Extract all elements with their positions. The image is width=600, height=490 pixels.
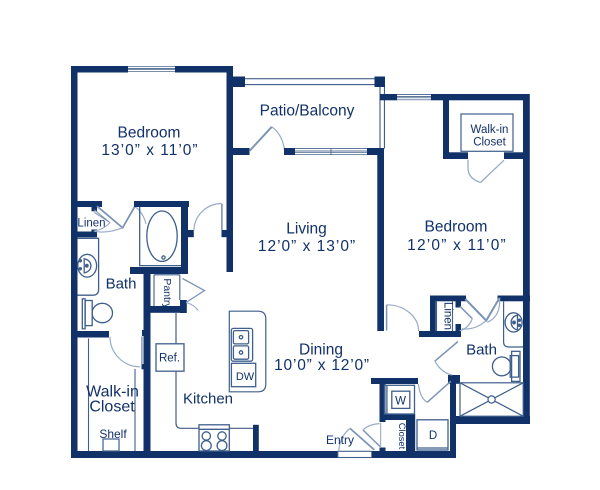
svg-text:W: W bbox=[395, 396, 406, 408]
svg-text:Closet: Closet bbox=[397, 423, 407, 450]
svg-text:Pantry: Pantry bbox=[161, 278, 173, 309]
svg-text:Closet: Closet bbox=[473, 136, 506, 148]
svg-text:Dining: Dining bbox=[299, 342, 343, 359]
svg-text:Ref.: Ref. bbox=[159, 353, 180, 365]
svg-text:Closet: Closet bbox=[89, 399, 135, 416]
svg-text:Walk-in: Walk-in bbox=[471, 124, 509, 136]
svg-text:Patio/Balcony: Patio/Balcony bbox=[260, 103, 355, 120]
svg-text:Bedroom: Bedroom bbox=[118, 125, 181, 142]
svg-text:Linen: Linen bbox=[77, 218, 105, 230]
svg-text:13’0” x 11’0”: 13’0” x 11’0” bbox=[101, 142, 198, 159]
svg-text:Shelf: Shelf bbox=[99, 427, 127, 441]
svg-text:Living: Living bbox=[286, 221, 327, 238]
svg-text:Bath: Bath bbox=[466, 342, 497, 359]
svg-text:Entry: Entry bbox=[326, 433, 354, 447]
svg-text:12’0” x 11’0”: 12’0” x 11’0” bbox=[407, 237, 507, 254]
svg-text:Kitchen: Kitchen bbox=[183, 391, 233, 408]
svg-text:Bath: Bath bbox=[106, 276, 137, 293]
svg-text:DW: DW bbox=[236, 371, 255, 383]
svg-text:12’0” x 13’0”: 12’0” x 13’0” bbox=[258, 238, 356, 255]
svg-text:Bedroom: Bedroom bbox=[425, 219, 488, 236]
svg-text:D: D bbox=[429, 430, 437, 442]
svg-text:10’0” x 12’0”: 10’0” x 12’0” bbox=[274, 357, 370, 374]
svg-text:Linen: Linen bbox=[442, 302, 454, 330]
